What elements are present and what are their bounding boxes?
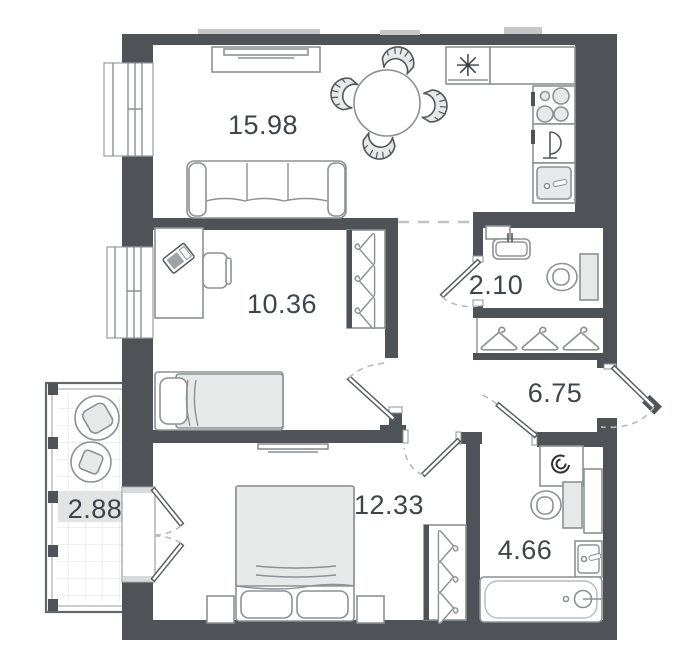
facade-tick	[198, 29, 320, 34]
wall-segment	[122, 34, 153, 63]
balcony-doorway	[122, 487, 183, 582]
wall-segment	[603, 218, 617, 360]
dining-chair-icon	[360, 132, 396, 162]
tv-stand	[212, 47, 320, 72]
bathtub	[480, 577, 603, 622]
bathroom-sink	[575, 541, 602, 577]
double-bed	[236, 486, 354, 621]
bathroom-room: 4.66	[480, 446, 603, 622]
fridge: ✳	[446, 47, 490, 84]
closet-front-rail	[473, 353, 603, 360]
balcony-chair	[75, 396, 119, 440]
nightstand	[357, 596, 384, 623]
wall-segment	[603, 432, 617, 628]
wc-sink	[486, 226, 530, 259]
area-label-living-kitchen: 15.98	[228, 110, 298, 140]
dining-chair-icon	[422, 89, 448, 123]
hanger-icon	[563, 327, 598, 349]
bathroom-cabinet	[584, 469, 602, 533]
balcony-door-leaf	[151, 543, 183, 581]
pillow	[241, 591, 292, 618]
area-label-wc: 2.10	[469, 270, 524, 300]
tv	[258, 444, 328, 452]
bedroom-master-door-leaf	[422, 439, 461, 477]
stove	[531, 86, 575, 124]
wall-segment	[537, 432, 617, 447]
window	[107, 247, 153, 338]
facade-tick	[380, 30, 420, 35]
pillow	[297, 591, 348, 618]
window	[104, 63, 153, 156]
wall-segment	[461, 432, 482, 444]
bathroom-door-swing	[480, 394, 497, 404]
bedroom-room: 10.36	[155, 228, 385, 430]
facade-tick	[504, 27, 542, 34]
wall-segment	[575, 34, 617, 218]
wall-segment	[122, 338, 153, 374]
wall-segment	[385, 230, 398, 358]
hanger-icon	[522, 327, 557, 349]
balcony-chair	[71, 442, 111, 482]
hall-closet	[477, 318, 599, 353]
kitchen-sink	[533, 163, 575, 203]
single-bed	[155, 372, 283, 430]
sofa	[187, 161, 346, 218]
door-jamb	[389, 407, 402, 413]
wall-segment	[597, 418, 617, 432]
area-label-balcony: 2.88	[68, 494, 123, 524]
bedroom-master-door-swing	[404, 448, 423, 475]
nightstand	[207, 596, 234, 623]
hallway: 6.75	[528, 378, 583, 408]
area-label-bedroom: 10.36	[247, 289, 317, 319]
dining-table	[354, 70, 420, 136]
door-jamb	[473, 300, 483, 306]
wc-room: 2.10	[469, 226, 598, 300]
hanger-icon	[481, 327, 516, 349]
fridge-snowflake-icon: ✳	[455, 50, 480, 83]
wardrobe	[424, 525, 466, 623]
wall-segment	[122, 34, 617, 45]
balcony-door-leaf	[151, 488, 183, 526]
bedroom-door-leaf	[348, 376, 396, 420]
bathroom-toilet	[531, 482, 582, 528]
living-kitchen-room: ✳ 15.98	[187, 43, 575, 222]
desk	[155, 228, 203, 318]
bedroom-door-swing	[349, 363, 386, 378]
kitchen-counter	[490, 47, 575, 84]
washing-machine	[540, 446, 583, 486]
door-jamb	[403, 430, 408, 443]
area-label-hallway: 6.75	[528, 378, 583, 408]
floor-plan: 2.88	[0, 0, 690, 671]
wardrobe	[347, 230, 385, 328]
wall-segment	[473, 308, 603, 318]
kitchen-faucet-icon	[531, 124, 575, 163]
wall-segment	[122, 156, 153, 247]
wall-segment	[122, 430, 405, 443]
wall-segment	[466, 432, 480, 632]
wc-toilet	[547, 254, 598, 300]
area-label-bedroom-master: 12.33	[354, 490, 424, 520]
area-label-bathroom: 4.66	[498, 535, 553, 565]
balcony-door-swing	[155, 526, 181, 543]
entrance-door-leaf	[612, 366, 656, 409]
desk-chair	[203, 253, 231, 288]
